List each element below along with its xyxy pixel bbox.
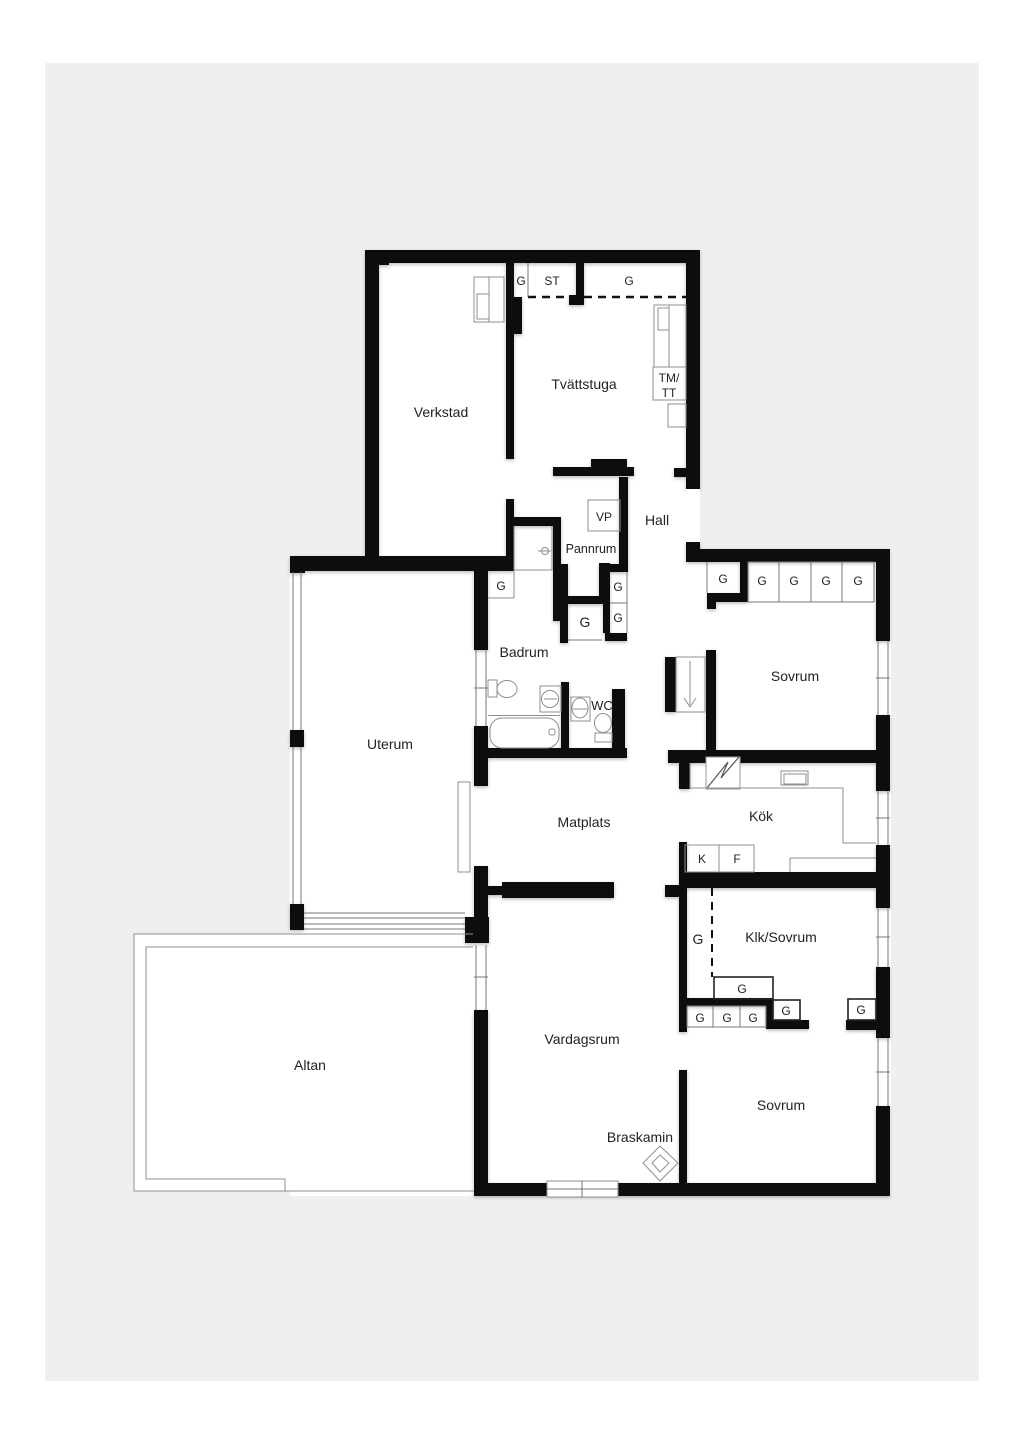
svg-text:G: G: [748, 1011, 757, 1025]
svg-text:Hall: Hall: [645, 512, 669, 528]
svg-text:Altan: Altan: [294, 1057, 326, 1073]
svg-text:TT: TT: [662, 386, 677, 400]
svg-text:G: G: [516, 274, 525, 288]
svg-text:G: G: [613, 580, 622, 594]
svg-text:Braskamin: Braskamin: [607, 1129, 673, 1145]
svg-text:G: G: [580, 614, 591, 630]
svg-text:G: G: [821, 574, 830, 588]
svg-text:Kök: Kök: [749, 808, 774, 824]
svg-text:G: G: [722, 1011, 731, 1025]
svg-text:Matplats: Matplats: [558, 814, 611, 830]
svg-text:G: G: [781, 1004, 790, 1018]
svg-text:G: G: [624, 274, 633, 288]
svg-text:Sovrum: Sovrum: [757, 1097, 805, 1113]
svg-text:G: G: [757, 574, 766, 588]
svg-text:Vardagsrum: Vardagsrum: [544, 1031, 619, 1047]
svg-text:ST: ST: [544, 274, 560, 288]
svg-text:G: G: [718, 572, 727, 586]
svg-text:G: G: [789, 574, 798, 588]
svg-text:Verkstad: Verkstad: [414, 404, 468, 420]
svg-text:G: G: [737, 982, 746, 996]
svg-text:G: G: [853, 574, 862, 588]
svg-text:Klk/Sovrum: Klk/Sovrum: [745, 929, 817, 945]
svg-text:G: G: [693, 931, 704, 947]
svg-text:Badrum: Badrum: [499, 644, 548, 660]
svg-text:G: G: [695, 1011, 704, 1025]
svg-text:F: F: [733, 852, 740, 866]
svg-text:Tvättstuga: Tvättstuga: [551, 376, 617, 392]
svg-text:G: G: [613, 611, 622, 625]
svg-text:VP: VP: [596, 510, 612, 524]
svg-text:Sovrum: Sovrum: [771, 668, 819, 684]
svg-text:G: G: [496, 579, 505, 593]
svg-text:TM/: TM/: [659, 371, 680, 385]
svg-text:G: G: [856, 1003, 865, 1017]
svg-text:WC: WC: [591, 698, 613, 713]
svg-text:Pannrum: Pannrum: [566, 542, 617, 556]
svg-text:K: K: [698, 852, 706, 866]
svg-text:Uterum: Uterum: [367, 736, 413, 752]
